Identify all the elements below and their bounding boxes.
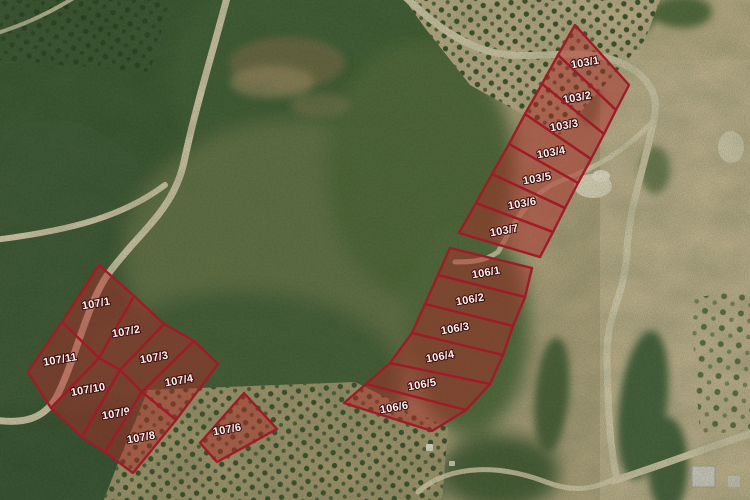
satellite-map-view: 103/1103/2103/3103/4103/5103/6103/7106/1… (0, 0, 750, 500)
satellite-map[interactable]: 103/1103/2103/3103/4103/5103/6103/7106/1… (0, 0, 750, 500)
